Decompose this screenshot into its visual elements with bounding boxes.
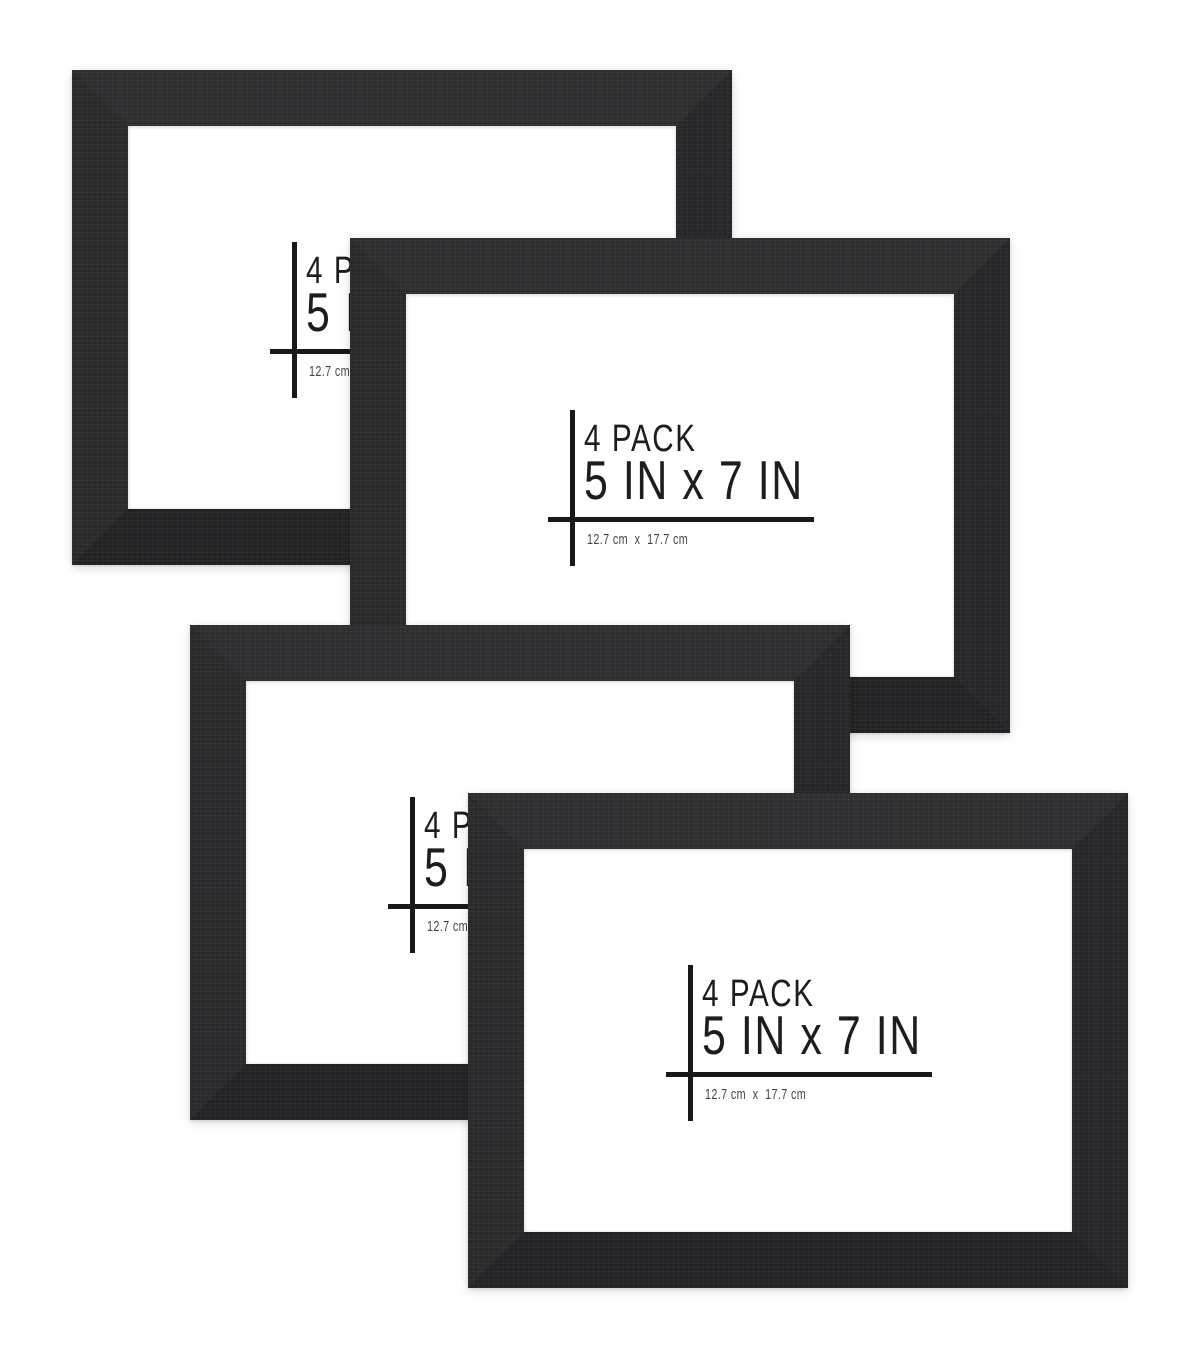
metric-size-text: 12.7 cm x 17.7 cm — [587, 531, 688, 549]
size-label: 4 PACK 5 IN x 7 IN 12.7 cm x 17.7 cm — [406, 294, 954, 677]
crosshair-horizontal-line — [666, 1072, 932, 1077]
size-text: 5 IN x 7 IN — [702, 1008, 922, 1063]
frame-mat: 4 PACK 5 IN x 7 IN 12.7 cm x 17.7 cm — [406, 294, 954, 677]
frame-mat: 4 PACK 5 IN x 7 IN 12.7 cm x 17.7 cm — [524, 849, 1072, 1232]
picture-frame-bottom-right: 4 PACK 5 IN x 7 IN 12.7 cm x 17.7 cm — [468, 793, 1128, 1288]
size-label: 4 PACK 5 IN x 7 IN 12.7 cm x 17.7 cm — [524, 849, 1072, 1232]
crosshair-vertical-line — [410, 797, 415, 953]
crosshair-vertical-line — [688, 965, 693, 1121]
metric-size-text: 12.7 cm x 17.7 cm — [705, 1086, 806, 1104]
product-image: 4 PACK 5 IN x 7 IN 12.7 cm x 17.7 cm 4 P… — [0, 0, 1200, 1360]
crosshair-horizontal-line — [548, 517, 814, 522]
crosshair-vertical-line — [570, 410, 575, 566]
crosshair-vertical-line — [292, 242, 297, 398]
size-text: 5 IN x 7 IN — [584, 453, 804, 508]
